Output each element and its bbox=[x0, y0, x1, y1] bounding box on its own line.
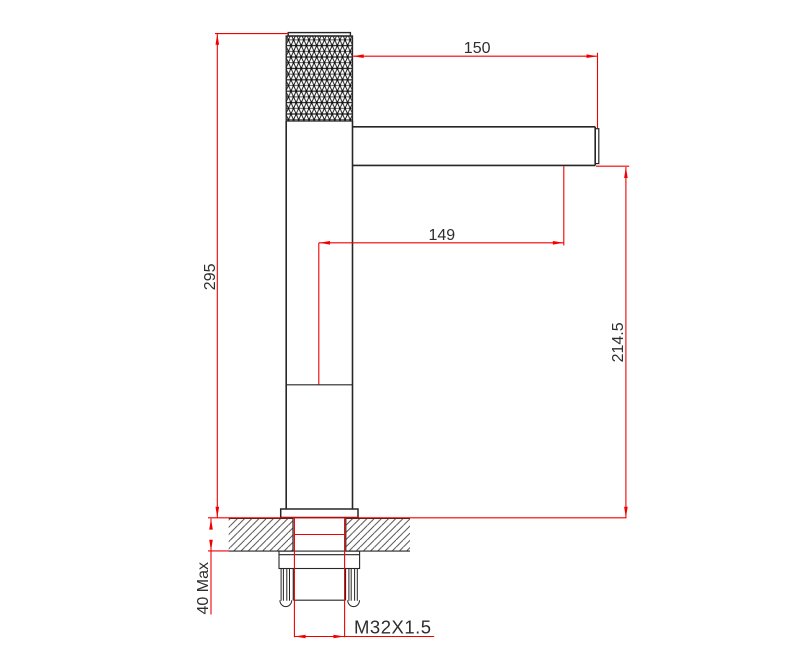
svg-text:M32X1.5: M32X1.5 bbox=[354, 617, 432, 638]
svg-text:295: 295 bbox=[202, 263, 219, 290]
svg-text:150: 150 bbox=[464, 40, 491, 57]
svg-text:214.5: 214.5 bbox=[610, 322, 627, 362]
svg-text:40 Max: 40 Max bbox=[195, 562, 212, 614]
svg-text:149: 149 bbox=[429, 227, 456, 244]
